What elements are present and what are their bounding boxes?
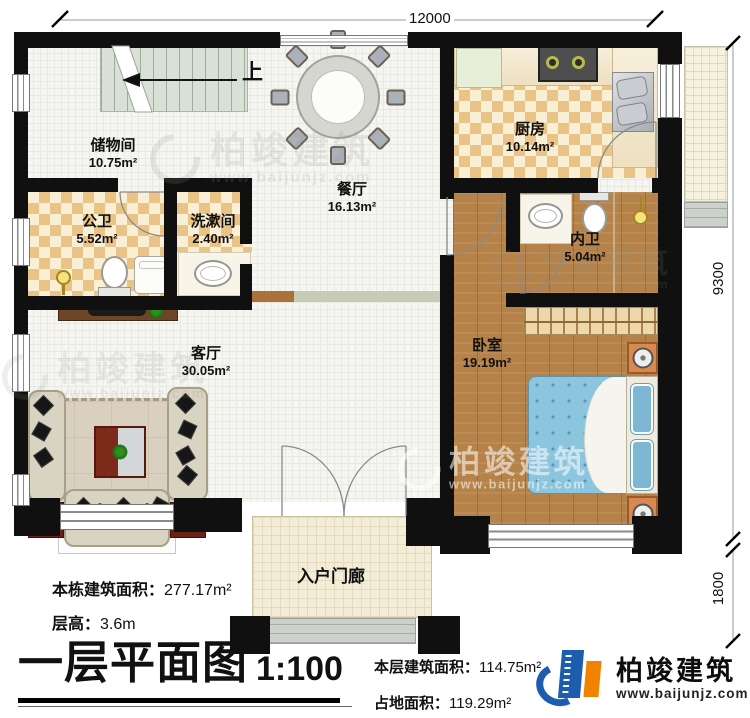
dining-chair-icon — [330, 146, 346, 165]
toilet-icon — [101, 256, 128, 289]
room-area: 30.05m² — [182, 363, 230, 378]
title-underline — [18, 698, 340, 703]
stat-label: 层高： — [52, 616, 100, 633]
fridge-icon — [456, 48, 502, 88]
logo-building-orange — [583, 661, 601, 697]
room-name: 客厅 — [182, 342, 230, 363]
stat-total-area: 本栋建筑面积：277.17m² — [52, 576, 232, 600]
pillow-icon — [631, 384, 653, 434]
shower-head-icon — [56, 270, 71, 285]
room-name: 餐厅 — [328, 178, 376, 199]
wardrobe-rod — [524, 321, 657, 323]
wall-segment — [440, 255, 454, 516]
stat-value: 119.29m² — [449, 695, 511, 712]
room-area: 16.13m² — [328, 199, 376, 214]
room-area: 10.14m² — [506, 139, 554, 154]
room-area: 5.52m² — [76, 231, 117, 246]
room-name: 洗漱间 — [190, 210, 235, 231]
wall-segment — [240, 192, 252, 244]
dimension-right-porch: 1800 — [710, 572, 727, 605]
wall-segment — [506, 293, 658, 307]
wall-segment — [164, 178, 252, 192]
room-label-storage: 储物间 10.75m² — [89, 134, 137, 170]
shower-head-icon — [633, 210, 648, 225]
wall-segment — [406, 498, 444, 546]
title-underline-thin — [18, 706, 352, 707]
window — [488, 524, 634, 548]
room-area: 2.40m² — [190, 231, 235, 246]
stat-label: 本栋建筑面积： — [52, 582, 164, 599]
room-name: 内卫 — [564, 228, 605, 249]
stairs — [100, 46, 248, 112]
wall-segment — [652, 178, 682, 193]
threshold-stone — [294, 291, 440, 302]
porch-steps — [266, 618, 416, 644]
room-name: 入户门廊 — [297, 562, 365, 587]
room-area: 10.75m² — [89, 155, 137, 170]
plan-scale: 1:100 — [256, 650, 343, 689]
brand-url: www.baijunjz.com — [616, 686, 749, 701]
shower-stem — [640, 196, 642, 211]
bath-divider — [613, 192, 615, 293]
stat-floor-area: 本层建筑面积：114.75m² — [374, 656, 541, 677]
wall-segment — [14, 112, 28, 218]
room-label-ensuite-bath: 内卫 5.04m² — [564, 228, 605, 264]
wall-segment — [18, 32, 280, 48]
pillow-icon — [631, 440, 653, 490]
wall-segment — [174, 498, 242, 532]
room-name: 公卫 — [76, 210, 117, 231]
wash-basin-icon — [194, 260, 232, 287]
side-terrace — [684, 46, 728, 202]
stat-footprint: 占地面积：119.29m² — [374, 692, 511, 713]
room-label-porch: 入户门廊 — [297, 562, 365, 587]
wall-segment — [14, 32, 28, 74]
terrace-steps — [684, 202, 728, 228]
stat-value: 114.75m² — [479, 659, 541, 676]
room-label-public-bath: 公卫 5.52m² — [76, 210, 117, 246]
wall-segment — [440, 178, 598, 193]
window — [12, 218, 30, 266]
burner-icon — [546, 56, 559, 69]
threshold-wood — [252, 291, 294, 302]
porch-column — [418, 616, 460, 654]
stat-value: 3.6m — [100, 616, 136, 633]
nightstand — [627, 342, 658, 374]
wall-segment — [164, 192, 177, 296]
wardrobe — [523, 307, 658, 335]
room-label-washroom: 洗漱间 2.40m² — [190, 210, 235, 246]
dining-chair-icon — [387, 90, 406, 106]
window — [12, 74, 30, 112]
brand-logo-icon — [536, 648, 606, 710]
window — [660, 64, 680, 118]
wall-segment — [26, 178, 118, 192]
room-name: 厨房 — [506, 118, 554, 139]
room-area: 19.19m² — [463, 355, 511, 370]
stat-value: 277.17m² — [164, 582, 232, 599]
room-label-living: 客厅 30.05m² — [182, 342, 230, 378]
window — [12, 334, 30, 392]
room-label-kitchen: 厨房 10.14m² — [506, 118, 554, 154]
window — [60, 504, 174, 530]
wall-segment — [240, 264, 252, 296]
brand-name: 柏竣建筑 — [616, 657, 749, 687]
wall-segment — [440, 516, 490, 554]
wall-segment — [26, 296, 252, 310]
dimension-right-main: 9300 — [710, 262, 727, 295]
dining-chair-icon — [271, 90, 290, 106]
dining-table — [296, 55, 380, 139]
brand-logo: 柏竣建筑 www.baijunjz.com — [536, 648, 749, 710]
window — [280, 35, 408, 46]
wall-segment — [506, 192, 520, 252]
stat-label: 本层建筑面积： — [374, 659, 479, 676]
window — [12, 474, 30, 506]
wall-segment — [14, 392, 28, 474]
stairs-up-label: 上 — [242, 56, 263, 86]
toilet-tank-icon — [579, 192, 609, 201]
burner-icon — [572, 56, 585, 69]
wash-basin-icon — [528, 203, 563, 229]
logo-building-blue — [558, 650, 584, 698]
dimension-top: 12000 — [406, 10, 454, 27]
wall-segment — [658, 32, 682, 64]
wall-segment — [440, 46, 454, 178]
stat-label: 占地面积： — [374, 695, 449, 712]
shower-stem — [62, 284, 65, 295]
floor-plan: 柏竣建筑 www.baijunjz.com 柏竣建筑 www.baijunjz.… — [0, 0, 750, 718]
plant-icon — [112, 444, 128, 460]
room-name: 卧室 — [463, 334, 511, 355]
room-label-bedroom: 卧室 19.19m² — [463, 334, 511, 370]
page-title: 一层平面图 — [18, 640, 248, 685]
room-name: 储物间 — [89, 134, 137, 155]
room-area: 5.04m² — [564, 249, 605, 264]
stat-floor-height: 层高：3.6m — [52, 610, 136, 634]
room-label-dining: 餐厅 16.13m² — [328, 178, 376, 214]
wall-segment — [440, 193, 454, 199]
